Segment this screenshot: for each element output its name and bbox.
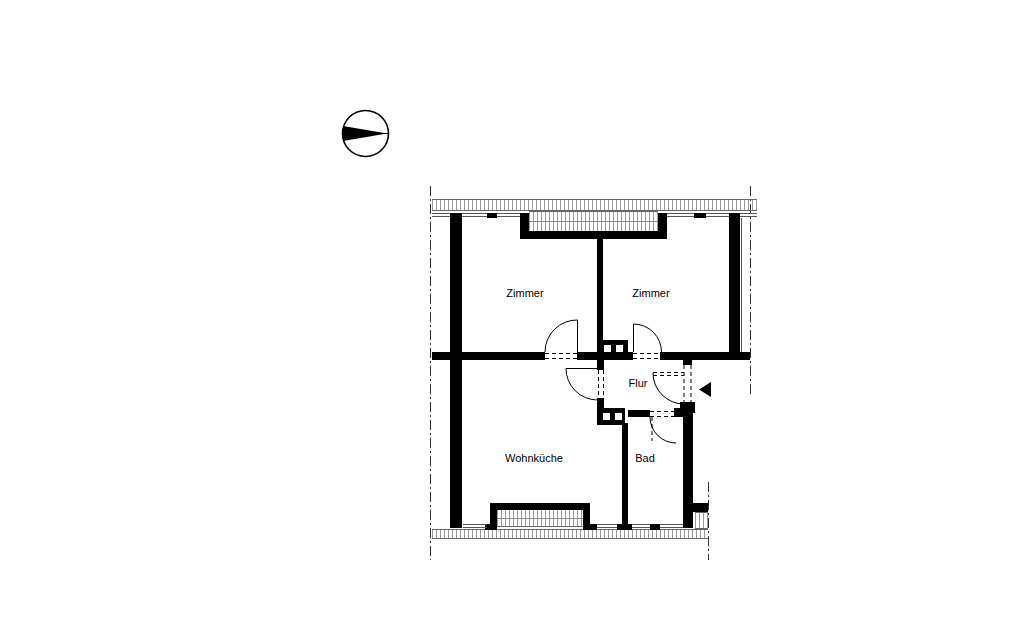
north-arrow-icon xyxy=(343,111,389,157)
door-right-zimmer xyxy=(633,324,662,359)
flue-opening xyxy=(616,345,623,352)
wall-face-line xyxy=(741,218,742,352)
window-double-line xyxy=(740,213,757,217)
wall xyxy=(597,360,604,370)
window-double-line xyxy=(497,213,520,217)
eaves-hatch-strip xyxy=(432,199,757,211)
flue-opening xyxy=(604,345,611,352)
eaves-hatch-strip xyxy=(432,529,708,539)
wall xyxy=(583,524,597,530)
entrance-arrow-icon xyxy=(699,382,711,397)
wall xyxy=(693,503,708,512)
door-swing-arc xyxy=(650,417,676,443)
window-double-line xyxy=(462,213,487,217)
room-label-zimmer-left: Zimmer xyxy=(506,287,543,299)
door-left-zimmer xyxy=(545,320,578,359)
room-label-zimmer-right: Zimmer xyxy=(632,287,669,299)
wall xyxy=(617,524,632,530)
window-double-line xyxy=(632,524,650,528)
wall xyxy=(432,352,545,360)
floor-plan-canvas: Zimmer Zimmer Flur Wohnküche Bad xyxy=(0,0,1024,643)
chimney-flue-block xyxy=(597,340,628,360)
wall xyxy=(628,352,633,360)
dormer-hatch-top xyxy=(529,211,658,232)
window-double-line xyxy=(660,524,683,528)
wall xyxy=(490,503,590,510)
wall xyxy=(450,213,462,528)
window-double-line xyxy=(432,213,450,217)
flue-opening xyxy=(603,413,610,420)
door-swing-arc xyxy=(566,369,598,401)
dormer-hatch-bottom xyxy=(497,509,583,527)
door-bad xyxy=(650,412,676,444)
door-swing-arc xyxy=(653,373,684,404)
wall xyxy=(487,213,497,218)
door-swing-arc xyxy=(545,320,578,352)
door-swing-arc xyxy=(634,324,662,352)
window-double-line xyxy=(706,213,729,217)
wall xyxy=(650,524,660,530)
plan-symbol-overlay xyxy=(0,0,1024,643)
chimney-flue-block xyxy=(597,408,625,425)
window-double-line xyxy=(667,213,694,217)
wall xyxy=(622,423,628,528)
wall xyxy=(683,360,692,365)
door-wohnkueche xyxy=(566,369,604,401)
wall xyxy=(520,231,667,239)
wall xyxy=(577,352,597,360)
wall xyxy=(694,213,706,218)
wall xyxy=(597,239,603,352)
wall xyxy=(683,402,693,528)
window-double-line xyxy=(597,524,617,528)
roof-edge-dashdot-line xyxy=(708,482,709,560)
entrance-door xyxy=(653,365,711,404)
roof-edge-dashdot-line xyxy=(750,186,751,395)
room-label-flur: Flur xyxy=(629,377,648,389)
wall xyxy=(729,213,740,360)
wall xyxy=(660,352,750,360)
flue-opening xyxy=(615,413,622,420)
room-label-wohnkueche: Wohnküche xyxy=(505,452,563,464)
window-double-line xyxy=(463,524,487,528)
room-label-bad: Bad xyxy=(635,452,655,464)
wall xyxy=(628,410,650,417)
roof-edge-dashdot-line xyxy=(430,186,431,560)
eaves-hatch-patch xyxy=(695,512,708,529)
